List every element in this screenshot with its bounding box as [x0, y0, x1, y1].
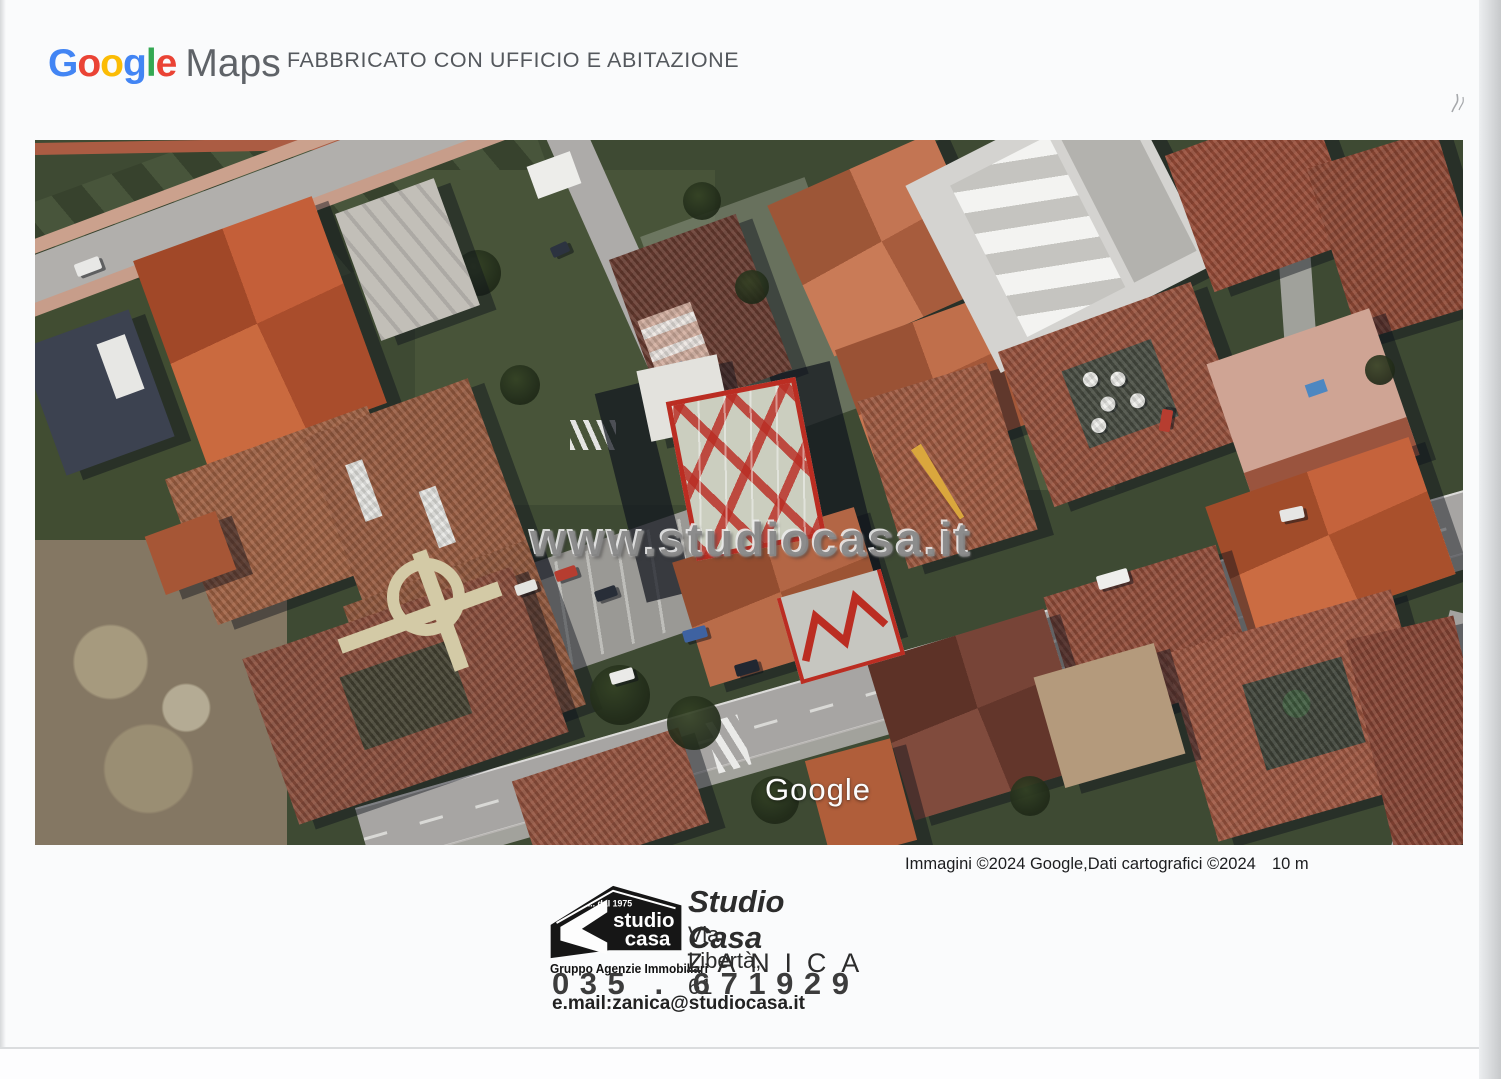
tree [735, 270, 769, 304]
google-logo-letter: o [100, 42, 123, 85]
inner-courtyard [1062, 339, 1179, 449]
scan-edge-left [0, 0, 6, 1079]
google-logo-letter: l [146, 42, 156, 85]
swimming-pool [1305, 379, 1328, 398]
inner-courtyard [1242, 656, 1366, 771]
tree [500, 365, 540, 405]
maps-wordmark: Maps [185, 42, 280, 85]
aerial-photo: www.studiocasa.it Google [35, 140, 1463, 845]
scan-edge-right [1479, 0, 1501, 1079]
terrace-umbrella [1098, 395, 1117, 414]
roof-skylight [97, 334, 145, 399]
tree [1010, 776, 1050, 816]
terrace-umbrella [1080, 370, 1099, 389]
page-title: FABBRICATO CON UFFICIO E ABITAZIONE [287, 48, 739, 73]
scan-below-strip [0, 1049, 1501, 1079]
google-maps-logo: GoogleMaps [48, 42, 281, 86]
studiocasa-watermark: www.studiocasa.it [530, 512, 1430, 567]
scanned-page: GoogleMaps FABBRICATO CON UFFICIO E ABIT… [0, 0, 1501, 1079]
google-logo-letter: o [77, 42, 100, 85]
google-logo-letter: G [48, 42, 77, 85]
terrace-umbrella [1127, 391, 1146, 410]
google-logo-letter: g [123, 42, 146, 85]
map-attribution: Immagini ©2024 Google,Dati cartografici … [905, 855, 1256, 874]
building-roof [1307, 140, 1463, 341]
google-logo-letter: e [156, 42, 177, 85]
tree [1365, 355, 1395, 385]
terrace-umbrella [1109, 370, 1128, 389]
tree [667, 696, 721, 750]
agency-stamp: ... dal 1975 studio casa Gruppo Agenzie … [548, 882, 686, 967]
roof-skylight [419, 486, 456, 549]
map-scale-label: 10 m [1272, 855, 1309, 874]
agency-email: e.mail:zanica@studiocasa.it [552, 993, 805, 1015]
tree [683, 182, 721, 220]
studio-casa-logo: ... dal 1975 studio casa [548, 882, 686, 962]
pen-mark [1446, 88, 1472, 118]
logo-tagline: ... dal 1975 [588, 898, 632, 908]
terrace-umbrella [1088, 416, 1107, 435]
logo-word-casa: casa [625, 927, 671, 950]
google-watermark: Google [765, 772, 871, 808]
roof-skylight [345, 459, 382, 522]
courtyard-tree [1279, 687, 1314, 722]
